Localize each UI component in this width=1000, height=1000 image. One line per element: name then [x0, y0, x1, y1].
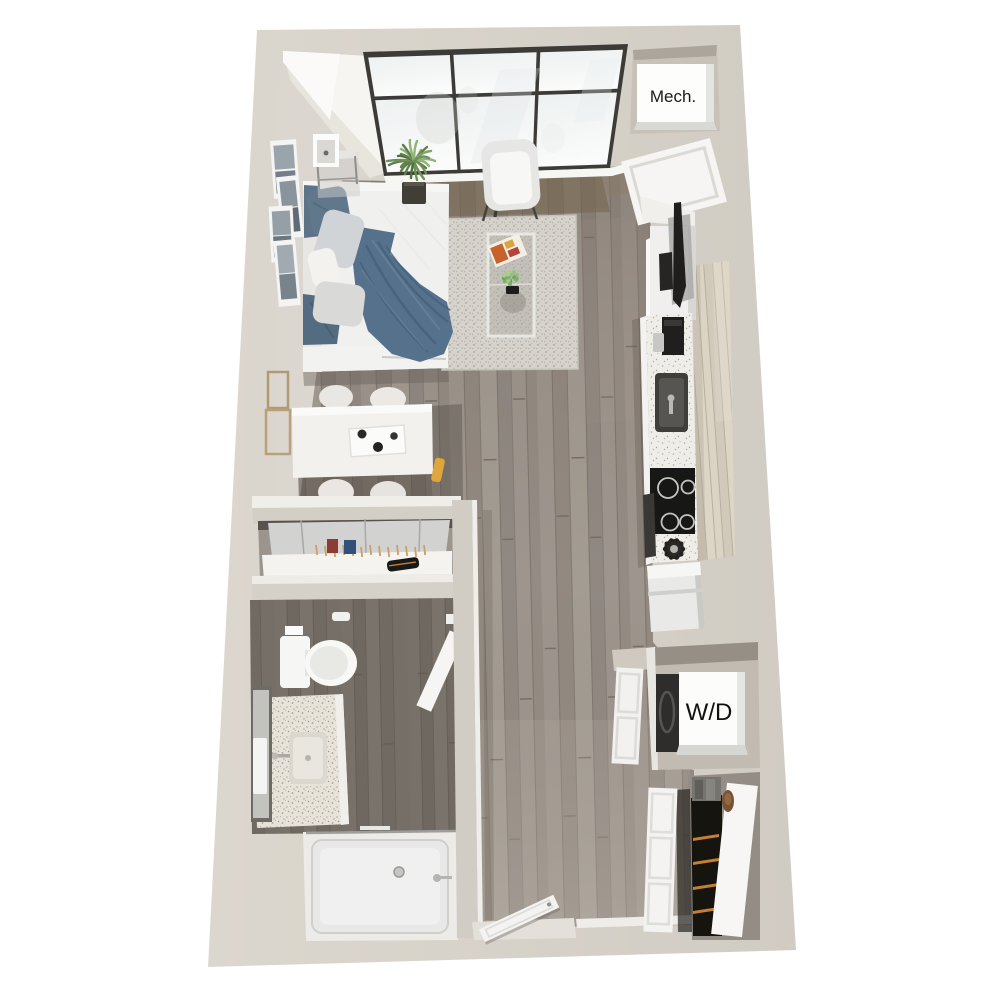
svg-text:Mech.: Mech.	[650, 87, 696, 106]
svg-text:W/D: W/D	[686, 699, 733, 726]
